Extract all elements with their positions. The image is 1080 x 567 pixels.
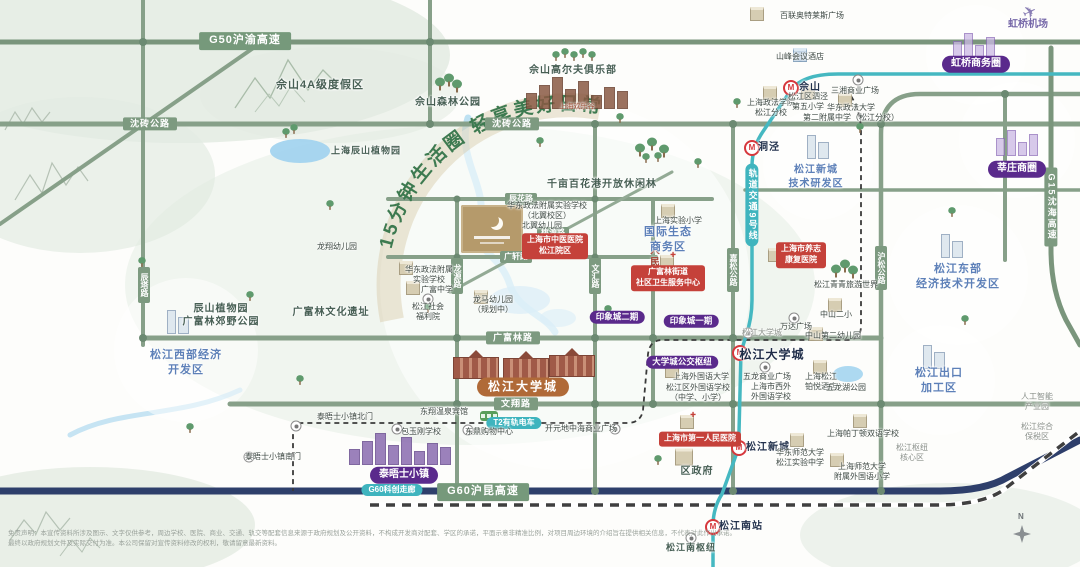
poi-ai-industry-park: 人工智能 产业园 bbox=[1021, 392, 1053, 412]
poi-shanfeng-hotel: 山峰会议酒店 bbox=[776, 52, 824, 62]
poi-thames-north-gate: 泰晤士小镇北门 bbox=[317, 412, 373, 422]
poi-shnu-foreign-primary: 上海师范大学 附属外国语小学 bbox=[834, 462, 890, 482]
tree-icon bbox=[579, 48, 587, 58]
area-east-dev: 松江东部 经济技术开发区 bbox=[916, 262, 1000, 292]
tag-tcm-hospital: 上海市中医医院 松江院区 bbox=[522, 233, 588, 259]
tram-stop-icon-sanxiang bbox=[853, 75, 864, 86]
outlets-building-icon bbox=[750, 7, 764, 21]
poi-bailian-outlets: 百联奥特莱斯广场 bbox=[780, 11, 844, 21]
tree-icon bbox=[733, 98, 741, 108]
poi-welfare-house: 松江社会 福利院 bbox=[412, 302, 444, 322]
tree-icon bbox=[570, 51, 578, 61]
label-hongqiao-airport: 虹桥机场 bbox=[1008, 19, 1048, 32]
tree-icon bbox=[452, 80, 462, 93]
pill-bus-hub: 大学城公交枢纽 bbox=[646, 356, 718, 369]
towers-icon-newcity-rd bbox=[807, 135, 829, 159]
road-label-shenzhuan-west: 沈砖公路 bbox=[123, 117, 177, 130]
tram-stop-icon-thames-north bbox=[291, 421, 302, 432]
tree-icon bbox=[654, 455, 662, 465]
poi-sanxiang-plaza: 三湘商业广场 bbox=[831, 86, 879, 96]
area-export-zone: 松江出口 加工区 bbox=[915, 366, 963, 396]
purple-city-icon-xinzhuang bbox=[996, 130, 1038, 156]
tram-stop-icon-wulong bbox=[760, 362, 771, 373]
poi-zhongshan-2nd-primary: 中山二小 bbox=[820, 310, 852, 320]
school-building-icon-ecnu bbox=[790, 433, 804, 447]
area-songjiang-newcity-rd: 松江新城 技术研发区 bbox=[789, 164, 844, 191]
poi-tram-stop-univ-town: 松江大学城 bbox=[742, 328, 782, 338]
pill-yinxiangcheng-1: 印象城一期 bbox=[664, 315, 719, 328]
station-sj-south: 松江南站 bbox=[719, 521, 763, 534]
poi-xiwai-school: 上海市西外 外国语学校 bbox=[751, 382, 791, 402]
label-sheshan-forest-park: 佘山森林公园 bbox=[415, 97, 481, 110]
poi-shiyan-primary: 上海实验小学 bbox=[654, 216, 702, 226]
label-flower-park: 千亩百花港开放休闲林 bbox=[547, 179, 657, 192]
location-map: 15分钟生活圈 轻享美好日常 免责声明：本宣传资料所涉及图示、文字仅供参考，周边… bbox=[0, 0, 1080, 567]
poi-wanda-plaza: 万达广场 bbox=[780, 322, 812, 332]
pill-yinxiangcheng-2: 印象城二期 bbox=[590, 311, 645, 324]
label-chenshan-garden: 上海辰山植物园 bbox=[331, 145, 401, 156]
label-district-gov: 区政府 bbox=[681, 466, 714, 479]
poi-beiyi-kindergarten: 北翼幼儿园 bbox=[522, 221, 562, 231]
poi-dongxiang-spa-hotel: 东翔温泉宾馆 bbox=[420, 407, 468, 417]
school-building-icon-paddington bbox=[853, 414, 867, 428]
road-label-g15: G15沈海高速 bbox=[1044, 167, 1057, 246]
poi-guangfu-middle: 广富中学 bbox=[421, 285, 453, 295]
pill-xinzhuang-cbd: 莘庄商圈 bbox=[988, 161, 1046, 178]
compass-icon: N bbox=[1009, 519, 1035, 545]
area-west-dev: 松江西部经济 开发区 bbox=[150, 348, 222, 378]
poi-bonded-zone: 松江综合 保税区 bbox=[1021, 422, 1053, 442]
road-label-g50: G50沪渝高速 bbox=[199, 32, 291, 50]
poi-longma-kindergarten: 龙马幼儿园 （规划中） bbox=[473, 295, 513, 315]
label-qingqing-world: 松江青青旅游世界 bbox=[814, 280, 878, 290]
tree-icon bbox=[948, 207, 956, 217]
tree-icon bbox=[552, 51, 560, 61]
tag-gfl-health-center: 广富林街道 社区卫生服务中心 bbox=[631, 265, 705, 291]
pill-univ-town: 松江大学城 bbox=[477, 378, 569, 397]
road-label-chenta: 辰塔路 bbox=[138, 267, 150, 303]
tree-icon bbox=[326, 200, 334, 210]
road-label-jiasong: 嘉松公路 bbox=[727, 248, 739, 292]
tree-icon bbox=[282, 128, 290, 138]
label-sheshan-resort: 佘山4A级度假区 bbox=[276, 79, 364, 93]
road-label-guangfulin: 广富林路 bbox=[486, 331, 540, 344]
disclaimer-line-1: 免责声明：本宣传资料所涉及图示、文字仅供参考，周边学校、医院、商业、交通、轨交等… bbox=[8, 527, 736, 537]
tree-icon bbox=[588, 51, 596, 61]
hospital-building-icon-first: ✚ bbox=[680, 415, 694, 429]
tree-icon bbox=[616, 113, 624, 123]
label-g60-corridor: G60科创走廊 bbox=[361, 484, 422, 496]
disclaimer-line-2: 最终以政府规划文件及实际交付为准。本公司保留对宣传资料修改的权利，敬请留意最新资… bbox=[8, 537, 281, 547]
poi-longxiang-kindergarten: 龙翔幼儿园 bbox=[317, 242, 357, 252]
tree-icon bbox=[856, 123, 864, 133]
tree-icon bbox=[296, 375, 304, 385]
tree-icon bbox=[246, 291, 254, 301]
tag-yangzhi-hospital: 上海市养志 康复医院 bbox=[776, 242, 826, 268]
label-songjiang-south-hub: 松江南枢纽 bbox=[666, 542, 716, 553]
label-happy-valley: 上海欢乐谷 bbox=[560, 104, 595, 113]
towers-icon-east-dev bbox=[941, 234, 963, 258]
poi-kaiyuan-mall: 开元地中海商业广场 bbox=[545, 424, 617, 434]
tree-icon bbox=[561, 48, 569, 58]
poi-sj-foreign-school: 松江区外国语学校 （中学、小学） bbox=[666, 383, 730, 403]
pill-thames-town: 泰晤士小镇 bbox=[370, 467, 438, 484]
tree-icon bbox=[536, 137, 544, 147]
station-dongjing: 洞泾 bbox=[758, 142, 780, 155]
road-label-wenhui: 文汇路 bbox=[589, 258, 601, 294]
university-building-icon-1 bbox=[453, 357, 499, 379]
area-eco-business: 国际生态 商务区 bbox=[644, 225, 692, 255]
poi-ecupl-north-campus: 华东政法附属实验学校 （北翼校区） bbox=[507, 201, 587, 221]
poi-dongding-mall: 东鼎购物中心 bbox=[465, 427, 513, 437]
thames-skyline-icon bbox=[349, 433, 451, 465]
poi-ecupl-exp-school: 华东政法附属 实验学校 bbox=[405, 265, 453, 285]
tree-icon bbox=[654, 152, 662, 162]
tree-icon bbox=[961, 315, 969, 325]
poi-wulong-plaza: 五龙商业广场 bbox=[743, 372, 791, 382]
road-label-wenxiang: 文翔路 bbox=[494, 397, 538, 410]
tree-icon bbox=[138, 257, 146, 267]
label-metro-line9: 轨道交通9号线 bbox=[745, 163, 758, 246]
poi-ecnu-sj-middle: 华东师范大学 松江实验中学 bbox=[776, 448, 824, 468]
label-guangfulin-relic: 广富林文化遗址 bbox=[293, 307, 370, 320]
station-sj-univ-town: 松江大学城 bbox=[739, 348, 804, 363]
label-sheshan-golf: 佘山高尔夫俱乐部 bbox=[529, 65, 617, 78]
tree-icon bbox=[290, 124, 298, 134]
label-country-park: 辰山植物园 广富林郊野公园 bbox=[183, 304, 260, 329]
tag-first-peoples-hospital: 上海市第一人民医院 bbox=[659, 432, 741, 447]
tree-icon bbox=[694, 158, 702, 168]
poi-sisu: 上海外国语大学 bbox=[673, 372, 729, 382]
tree-icon bbox=[848, 266, 858, 279]
tree-icon bbox=[186, 423, 194, 433]
road-label-g60: G60沪昆高速 bbox=[437, 483, 529, 501]
government-building-icon bbox=[675, 449, 693, 466]
tree-icon bbox=[642, 153, 650, 163]
poi-zhongshan-2nd-kg: 中山第二幼儿园 bbox=[805, 331, 861, 341]
university-building-icon-3 bbox=[549, 355, 595, 377]
pill-hongqiao-cbd: 虹桥商务圈 bbox=[942, 56, 1010, 73]
poi-baoyugang-school: 包玉刚学校 bbox=[401, 427, 441, 437]
poi-wulong-lake-park: 五龙湖公园 bbox=[826, 383, 866, 393]
road-label-shenzhuan: 沈砖公路 bbox=[485, 117, 539, 130]
poi-ecupl-2nd-middle: 华东政法大学 第二附属中学（松江分校） bbox=[803, 103, 899, 123]
tree-icon bbox=[647, 138, 657, 151]
poi-paddington-school: 上海帕丁顿双语学校 bbox=[827, 429, 899, 439]
poi-thames-south-gate: 泰晤士小镇南门 bbox=[245, 452, 301, 462]
poi-hub-core-area: 松江枢纽 核心区 bbox=[896, 443, 928, 463]
